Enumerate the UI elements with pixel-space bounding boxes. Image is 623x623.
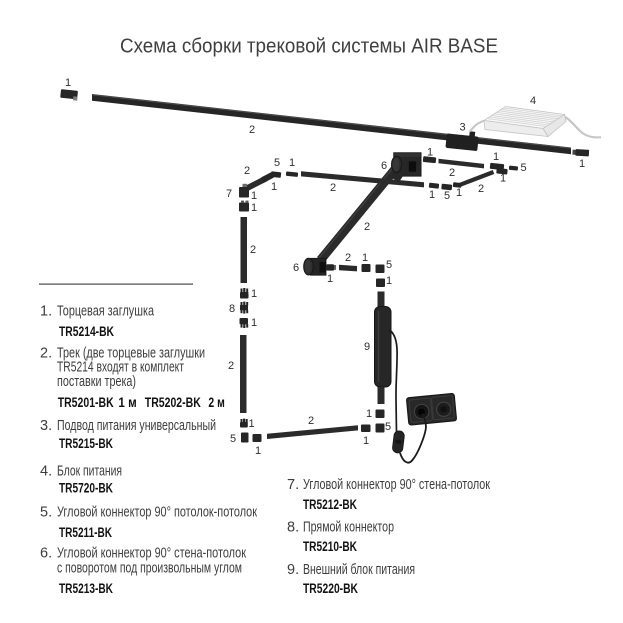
svg-text:1: 1 — [65, 77, 71, 89]
svg-text:TR5720-BK: TR5720-BK — [59, 481, 113, 496]
svg-text:2: 2 — [345, 252, 351, 264]
svg-text:5: 5 — [385, 421, 391, 433]
svg-text:1: 1 — [493, 151, 499, 163]
svg-text:1: 1 — [363, 435, 369, 447]
svg-text:2: 2 — [478, 183, 484, 195]
svg-text:TR5212-BK: TR5212-BK — [303, 497, 357, 512]
svg-text:5.: 5. — [40, 505, 52, 521]
svg-text:5: 5 — [230, 433, 236, 445]
svg-text:1: 1 — [248, 418, 254, 430]
svg-text:с поворотом под произвольным у: с поворотом под произвольным углом — [57, 561, 242, 577]
svg-text:1: 1 — [251, 202, 257, 214]
svg-text:4: 4 — [530, 95, 536, 107]
svg-text:1: 1 — [289, 157, 295, 169]
svg-text:1: 1 — [456, 187, 462, 199]
svg-text:8: 8 — [229, 303, 235, 315]
svg-text:7.: 7. — [287, 477, 299, 493]
svg-text:2: 2 — [244, 165, 250, 177]
svg-text:5: 5 — [386, 259, 392, 271]
svg-text:2: 2 — [228, 360, 234, 372]
svg-text:TR5215-BK: TR5215-BK — [59, 436, 113, 451]
svg-text:9: 9 — [364, 341, 370, 353]
svg-text:TR5202-BK: TR5202-BK — [145, 395, 201, 410]
svg-text:1: 1 — [500, 173, 506, 185]
svg-text:поставки трека): поставки трека) — [57, 374, 136, 390]
svg-text:TR5211-BK: TR5211-BK — [59, 525, 112, 540]
svg-text:5: 5 — [274, 157, 280, 169]
svg-text:1.: 1. — [40, 304, 52, 320]
svg-text:7: 7 — [226, 188, 232, 200]
svg-text:6.: 6. — [40, 546, 52, 562]
svg-text:8.: 8. — [287, 520, 299, 536]
svg-text:3.: 3. — [40, 418, 52, 434]
svg-text:2.: 2. — [40, 346, 52, 362]
svg-text:6: 6 — [293, 262, 299, 274]
svg-text:3: 3 — [459, 122, 465, 134]
svg-text:Торцевая заглушка: Торцевая заглушка — [57, 304, 155, 320]
svg-text:5: 5 — [520, 162, 526, 174]
svg-text:6: 6 — [381, 160, 387, 172]
svg-text:1: 1 — [362, 252, 368, 264]
svg-text:Прямой коннектор: Прямой коннектор — [303, 520, 394, 536]
svg-text:1: 1 — [327, 273, 333, 285]
svg-text:1: 1 — [255, 445, 261, 457]
svg-text:2: 2 — [364, 221, 370, 233]
svg-text:TR5214-BK: TR5214-BK — [59, 324, 114, 339]
svg-text:2: 2 — [449, 167, 455, 179]
svg-text:2: 2 — [330, 182, 336, 194]
svg-text:1 м: 1 м — [118, 395, 136, 410]
svg-text:1: 1 — [271, 181, 277, 193]
svg-text:TR5220-BK: TR5220-BK — [303, 581, 358, 596]
svg-text:2: 2 — [250, 244, 256, 256]
svg-text:1: 1 — [366, 408, 372, 420]
svg-text:1: 1 — [251, 190, 257, 202]
svg-text:2: 2 — [308, 415, 314, 427]
svg-text:1: 1 — [429, 189, 435, 201]
svg-text:1: 1 — [427, 147, 433, 159]
svg-text:TR5213-BK: TR5213-BK — [59, 581, 113, 596]
svg-text:1: 1 — [251, 288, 257, 300]
svg-text:2 м: 2 м — [208, 395, 224, 410]
svg-text:5: 5 — [444, 190, 450, 202]
svg-text:Угловой коннектор 90° стена-по: Угловой коннектор 90° стена-потолок — [303, 477, 490, 493]
svg-text:Угловой коннектор 90° стена-по: Угловой коннектор 90° стена-потолок — [57, 546, 246, 562]
svg-text:1: 1 — [251, 317, 257, 329]
svg-text:1: 1 — [579, 158, 585, 170]
svg-text:Внешний блок питания: Внешний блок питания — [303, 562, 415, 578]
svg-text:9.: 9. — [287, 562, 299, 578]
svg-text:Схема сборки трековой системы: Схема сборки трековой системы AIR BASE — [120, 35, 498, 58]
svg-text:TR5210-BK: TR5210-BK — [303, 539, 357, 554]
svg-text:Блок питания: Блок питания — [57, 464, 122, 480]
svg-text:4.: 4. — [40, 464, 52, 480]
svg-text:Подвод питания универсальный: Подвод питания универсальный — [57, 418, 216, 434]
svg-text:1: 1 — [386, 275, 392, 287]
svg-text:2: 2 — [249, 124, 255, 136]
svg-text:TR5201-BK: TR5201-BK — [58, 395, 114, 410]
svg-text:Угловой коннектор 90° потолок-: Угловой коннектор 90° потолок-потолок — [57, 505, 257, 521]
